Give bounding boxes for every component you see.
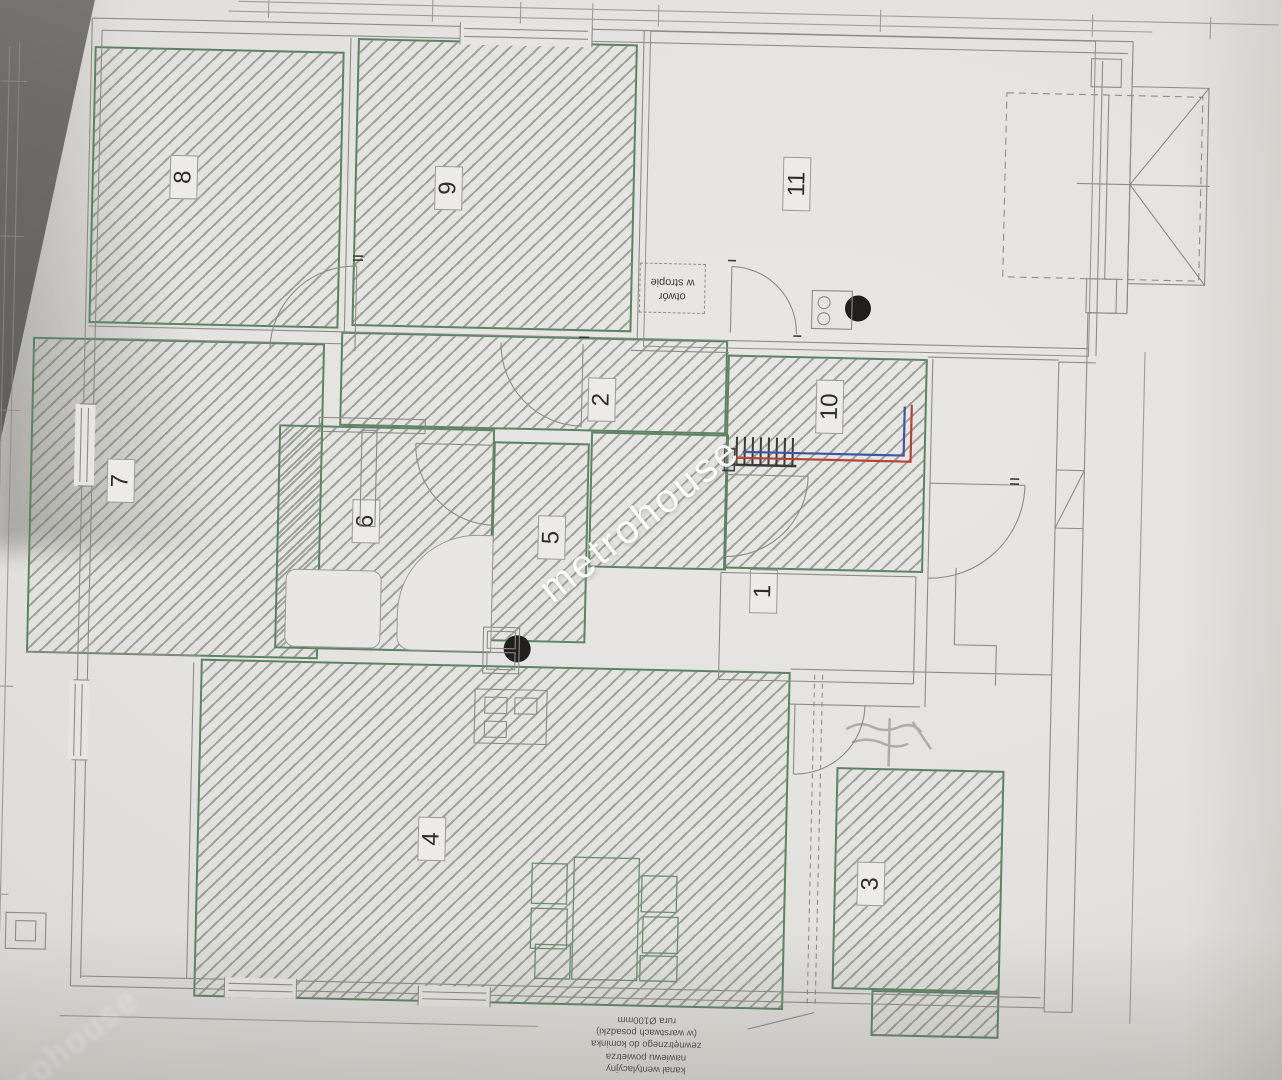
ceiling-opening-line: otwór — [659, 288, 686, 302]
floor-plan-photo: 1234567891011 — [0, 0, 1282, 1080]
room-label-8: 8 — [169, 155, 198, 200]
room-7 — [26, 337, 325, 660]
hatched-area — [870, 990, 999, 1039]
room-label-6: 6 — [352, 499, 381, 544]
room-label-3: 3 — [856, 862, 885, 907]
pipe-note: kanał wentylacyjny nawiewu powietrza zew… — [543, 1011, 750, 1077]
room-label-11: 11 — [782, 157, 811, 212]
room-9 — [351, 38, 637, 332]
room-4 — [193, 659, 791, 1010]
shower-tray — [284, 569, 382, 649]
vent-duct-dashed — [807, 675, 822, 1005]
room-label-10: 10 — [815, 380, 844, 435]
room-label-2: 2 — [587, 377, 616, 422]
room-8 — [88, 46, 344, 329]
ceiling-opening-note: otwór w stropie — [639, 263, 706, 314]
room-label-4: 4 — [417, 817, 446, 862]
room-label-9: 9 — [434, 166, 463, 211]
note-leader-line — [748, 1011, 814, 1030]
room-label-1: 1 — [749, 569, 778, 614]
room-label-7: 7 — [106, 458, 135, 503]
column-symbol — [5, 912, 46, 949]
room-11 — [643, 31, 1096, 357]
ceiling-opening-line: w stropie — [650, 274, 694, 289]
pencil-scribble — [846, 717, 932, 767]
